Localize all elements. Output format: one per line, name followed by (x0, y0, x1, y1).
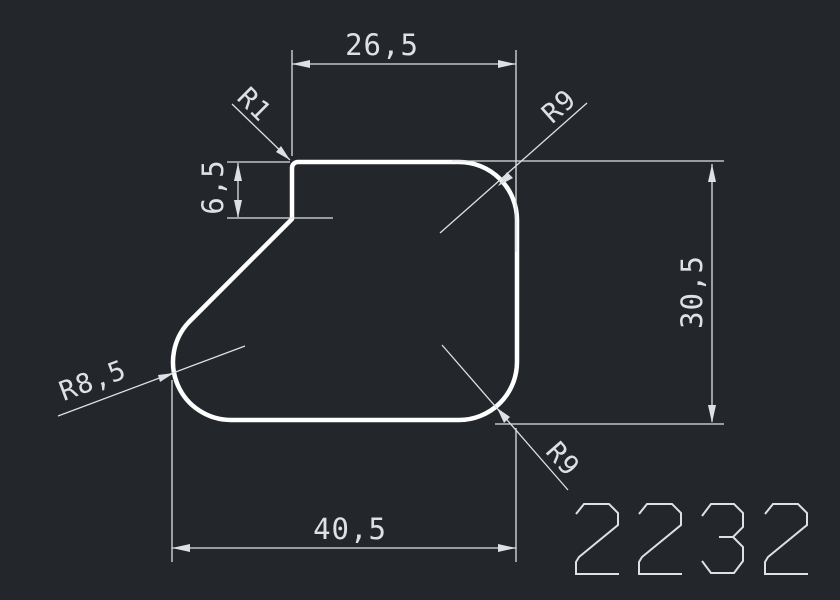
arrowhead-up (708, 164, 716, 182)
radius-leader-top-right: R9 (440, 84, 587, 233)
radius-label-top-right: R9 (536, 84, 582, 130)
arrowhead-right (498, 60, 516, 68)
arrowhead-down (708, 405, 716, 423)
arrowhead-left (172, 544, 190, 552)
drawing-svg: 26,5 6,5 30,5 40,5 (0, 0, 840, 600)
radius-label-bottom-right: R9 (539, 436, 585, 482)
part-number-digit (765, 504, 808, 574)
dimension-label-left-step-height: 6,5 (196, 159, 230, 214)
arrowhead-up (234, 163, 242, 181)
dimension-label-bottom-width: 40,5 (313, 512, 387, 546)
dimension-bottom-width: 40,5 (172, 380, 516, 562)
dimension-right-height: 30,5 (452, 161, 724, 424)
arrowhead-right (498, 544, 516, 552)
radius-leader-bottom-right: R9 (442, 345, 585, 490)
dimension-left-step-height: 6,5 (196, 159, 333, 218)
leader-line (440, 103, 587, 233)
dimension-label-top-width: 26,5 (345, 28, 419, 62)
part-number-digit (576, 504, 619, 574)
arrowhead-left (292, 60, 310, 68)
radius-leader-top-left: R1 (231, 82, 290, 160)
radius-label-top-left: R1 (231, 82, 277, 128)
radius-leader-bottom-left: R8,5 (55, 346, 245, 416)
part-number (576, 504, 808, 574)
dimension-label-right-height: 30,5 (675, 255, 709, 329)
arrowhead-down (234, 200, 242, 218)
cad-drawing-canvas: 26,5 6,5 30,5 40,5 (0, 0, 840, 600)
part-number-digit (639, 504, 682, 574)
part-number-digit (702, 504, 743, 573)
radius-label-bottom-left: R8,5 (55, 354, 131, 407)
